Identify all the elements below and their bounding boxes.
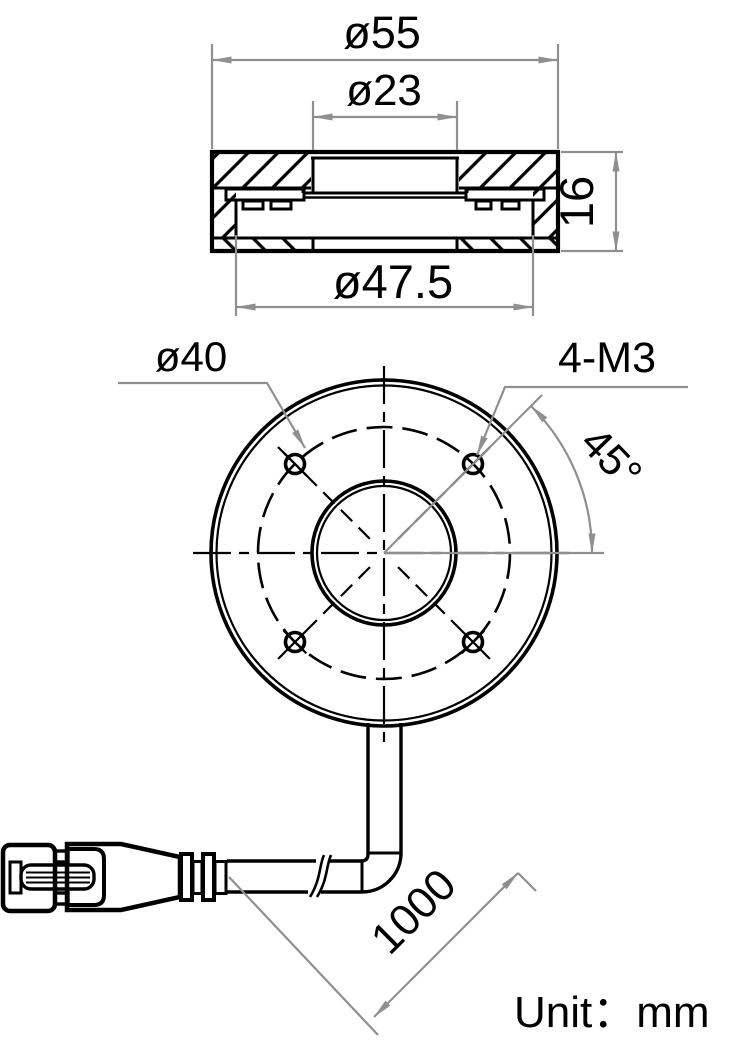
dim-window-diameter-label: ø23 (346, 66, 422, 115)
dim-bolt-circle-label: ø40 (155, 333, 227, 380)
dim-body-diameter-label: ø47.5 (333, 255, 453, 308)
unit-label: Unit：mm (514, 988, 710, 1037)
technical-drawing: ø55 ø23 16 ø47.5 (0, 0, 735, 1060)
drawing-canvas: ø55 ø23 16 ø47.5 (0, 0, 735, 1060)
dim-mounting-holes-label: 4-M3 (558, 334, 656, 382)
dim-height-label: 16 (550, 176, 603, 228)
dim-outer-diameter-label: ø55 (343, 7, 421, 58)
